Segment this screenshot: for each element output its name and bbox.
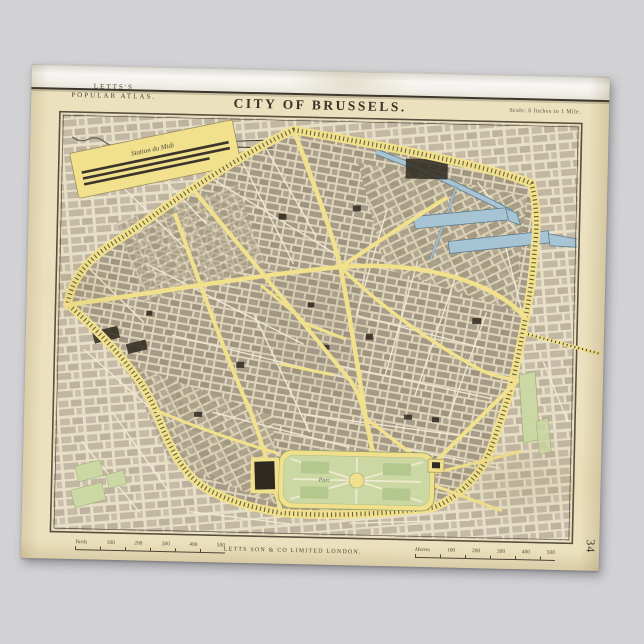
park-label: Parc: [318, 478, 331, 484]
place-royale: [428, 459, 444, 472]
parc-de-bruxelles: Parc: [278, 450, 435, 512]
map-area: Station du Midi: [49, 111, 608, 545]
photo-background: LETTS'S POPULAR ATLAS. CITY OF BRUSSELS.…: [0, 0, 644, 644]
brussels-map: Station du Midi: [49, 111, 608, 545]
plate-number: 34: [583, 539, 598, 553]
royal-palace: [250, 457, 279, 494]
scalebar-metres-label: Metres: [415, 547, 430, 553]
scalebar-metres: Metres 100 200 300 400 500: [415, 547, 555, 561]
atlas-page: LETTS'S POPULAR ATLAS. CITY OF BRUSSELS.…: [21, 64, 610, 571]
